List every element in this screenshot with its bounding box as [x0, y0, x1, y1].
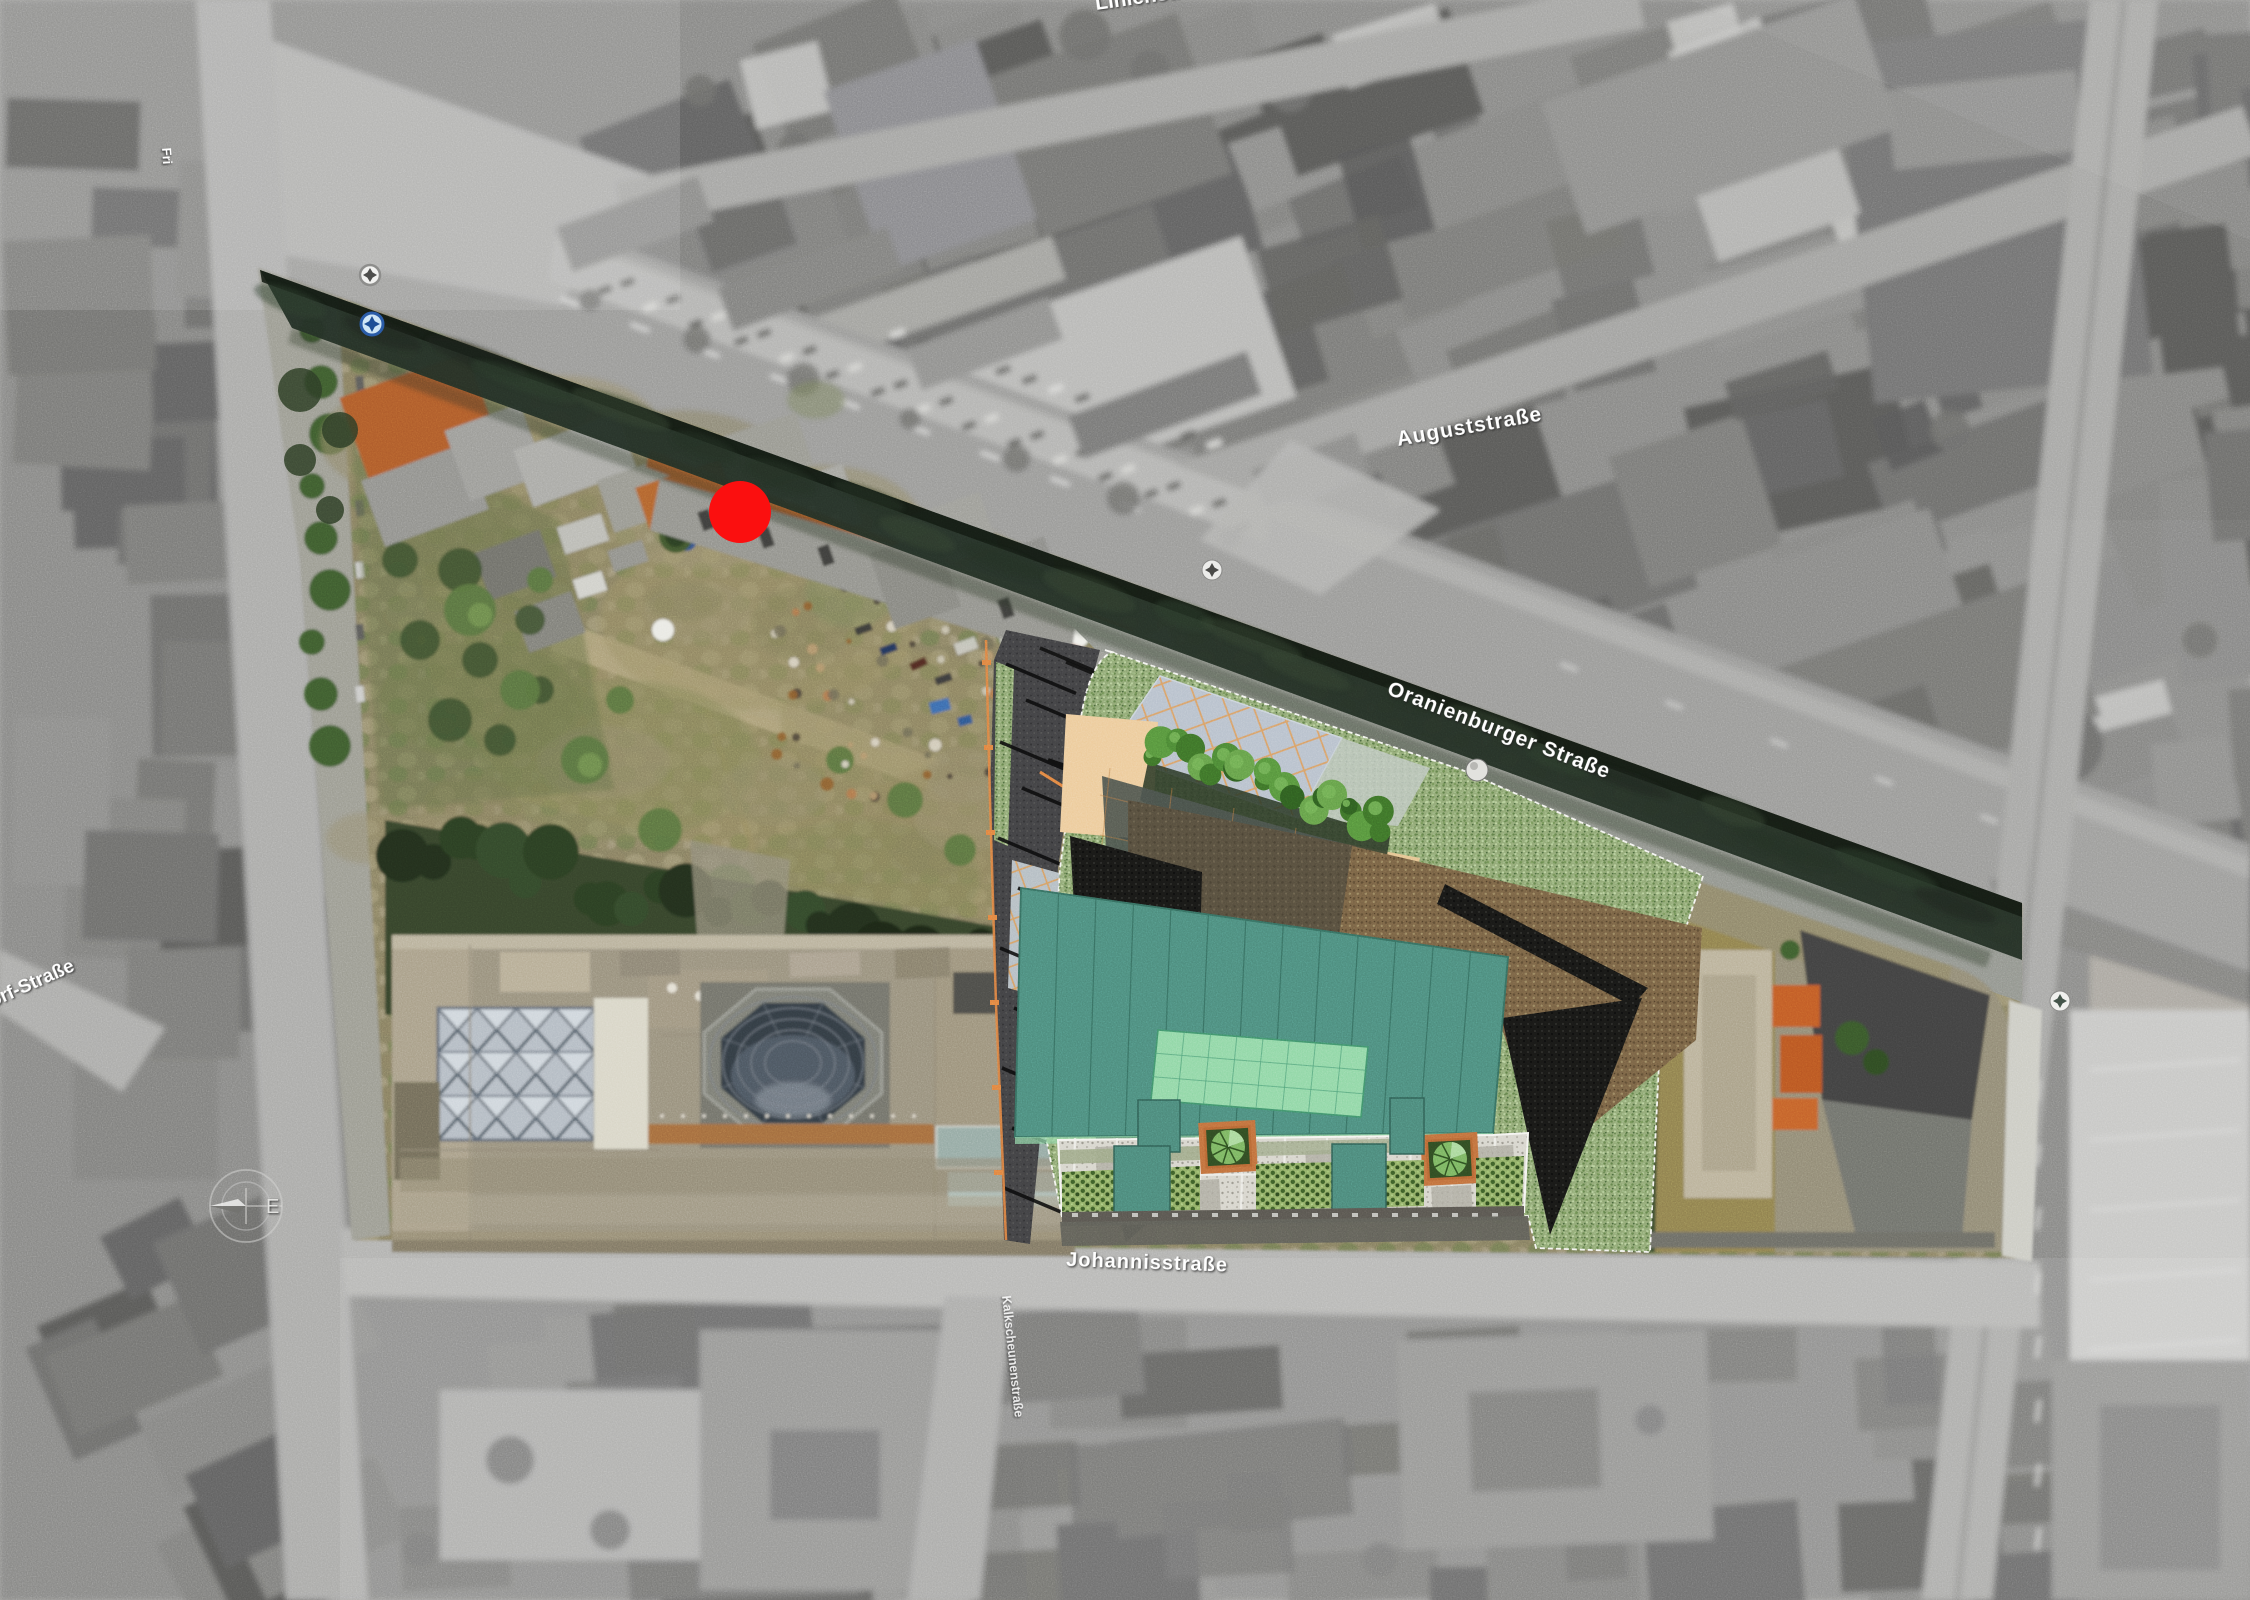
svg-text:E: E: [266, 1196, 279, 1218]
svg-text:Fri: Fri: [159, 147, 175, 165]
